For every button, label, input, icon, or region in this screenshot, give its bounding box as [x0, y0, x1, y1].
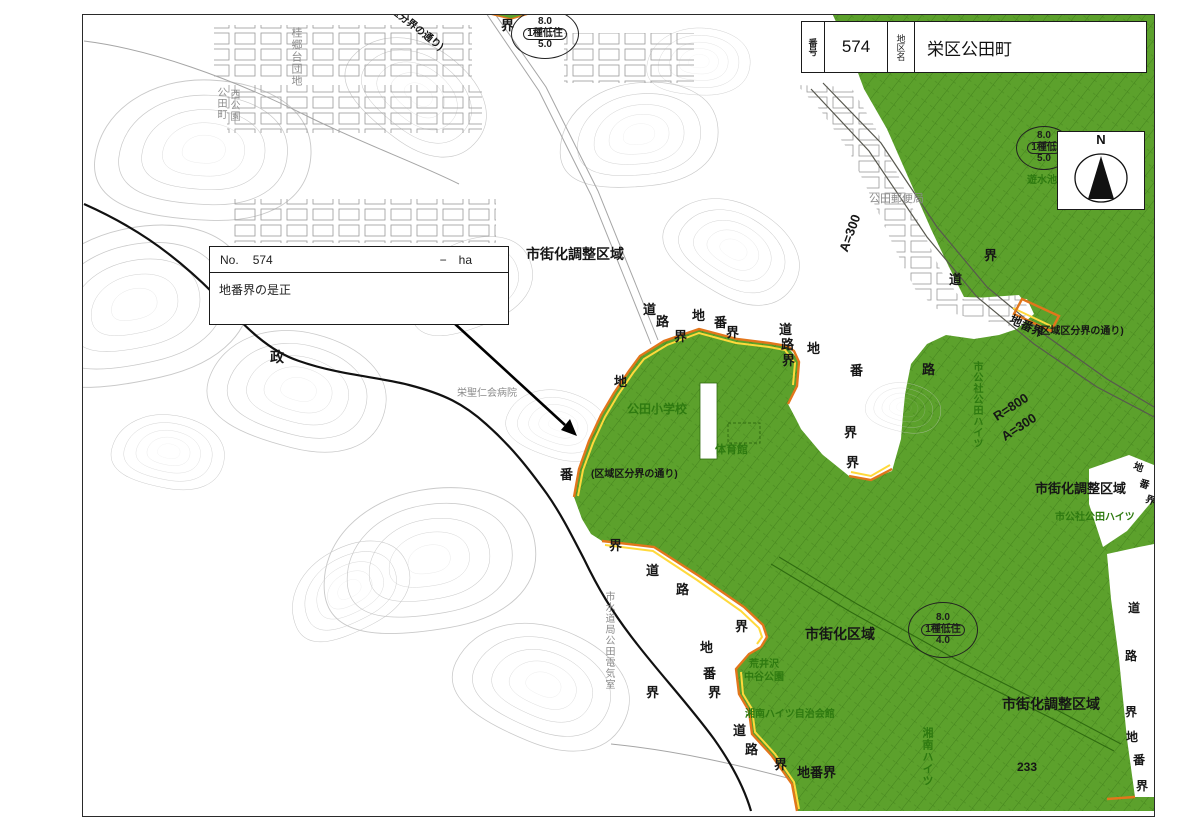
map-label: 中谷公園 — [744, 673, 784, 683]
map-label: 路 — [656, 315, 669, 328]
map-label: 道 — [643, 303, 656, 316]
map-label: 公田郵便局 — [869, 194, 924, 205]
map-label: 荒井沢 — [749, 660, 779, 670]
map-label: 番 — [703, 667, 716, 680]
map-label: 道 — [1128, 602, 1140, 614]
annotation-info-box: No. 574 − ha 地番界の是正 — [209, 246, 509, 325]
map-label: 地 — [807, 342, 820, 355]
map-label: 政 — [270, 350, 284, 364]
map-label: 地 — [1126, 731, 1138, 743]
map-label: 桂郷台団地 — [290, 27, 301, 87]
map-label: 市街化調整区域 — [1002, 697, 1100, 711]
map-frame: 番号 574 地区名 栄区公田町 No. 574 − ha 地番界の是正 N — [82, 14, 1155, 817]
annotation-arrow — [454, 323, 577, 436]
map-label: 市水道局公田電気室 — [603, 591, 613, 690]
map-label: 番 — [850, 364, 863, 377]
zoning-symbol-row: 4.0 — [936, 636, 950, 647]
map-label: 界 — [674, 330, 687, 343]
map-label: 地番界 — [797, 766, 836, 779]
map-label: 道 — [949, 273, 962, 286]
map-label: 栄聖仁会病院 — [457, 389, 517, 399]
map-label: 体育館 — [715, 445, 748, 456]
map-label: 界 — [782, 354, 795, 367]
map-label: 市公社公田ハイツ — [971, 361, 981, 449]
zoning-symbol: 8.01種低住4.0 — [908, 602, 978, 658]
map-label: 界 — [708, 686, 721, 699]
map-label: 市街化調整区域 — [1035, 482, 1126, 495]
number-value-cell: 574 — [825, 22, 888, 72]
info-box-row1: No. 574 − ha — [210, 247, 508, 273]
info-description: 地番界の是正 — [219, 281, 508, 298]
map-label: (区域区分界の通り) — [1037, 327, 1124, 337]
map-label: 道 — [779, 323, 792, 336]
map-label: 路 — [781, 338, 794, 351]
map-label: 市街化調整区域 — [526, 247, 624, 261]
info-area-unit: ha — [459, 253, 472, 267]
plan-map-page: 番号 574 地区名 栄区公田町 No. 574 − ha 地番界の是正 N — [0, 0, 1200, 829]
map-label: 界 — [726, 326, 739, 339]
north-arrow: N — [1057, 131, 1145, 210]
north-arrow-icon — [1058, 147, 1144, 207]
map-label: 地 — [700, 641, 713, 654]
map-label: 界 — [1136, 780, 1148, 792]
map-label: 路 — [676, 583, 689, 596]
info-area-value: − — [440, 253, 447, 267]
map-label: 地 — [614, 375, 627, 388]
map-label: 公田町 — [215, 87, 225, 120]
zoning-symbol-row: 5.0 — [1037, 154, 1051, 165]
map-label: 路 — [922, 363, 935, 376]
map-label: 市街化区域 — [805, 627, 875, 641]
map-label: 市公社公田ハイツ — [1055, 513, 1135, 523]
info-number: 574 — [253, 253, 273, 267]
map-label: 界 — [1125, 706, 1137, 718]
zoning-symbol-row: 8.0 — [1037, 131, 1051, 142]
district-name-cell: 栄区公田町 — [915, 22, 1146, 72]
zoning-symbol-row: 5.0 — [538, 40, 552, 51]
map-label: 界 — [844, 426, 857, 439]
map-label: 界 — [735, 620, 748, 633]
sheet-header-table: 番号 574 地区名 栄区公田町 — [801, 21, 1147, 73]
map-label: 湘南ハイツ自治会館 — [745, 710, 835, 720]
zoning-symbol-row: 8.0 — [538, 17, 552, 28]
district-label-cell: 地区名 — [888, 22, 915, 72]
map-label: (区域区分界の通り) — [591, 470, 678, 480]
map-label: 233 — [1017, 761, 1037, 773]
map-label: 公田小学校 — [627, 403, 687, 415]
map-label: 番 — [1133, 754, 1145, 766]
map-label: 地 — [692, 309, 705, 322]
map-label: 道 — [733, 724, 746, 737]
map-label: 界 — [846, 456, 859, 469]
map-label: 遊水池 — [1027, 176, 1057, 186]
map-label: 番 — [560, 468, 573, 481]
map-label: 西公園 — [228, 89, 238, 122]
building-blocks — [214, 25, 694, 243]
map-label: 路 — [1125, 650, 1137, 662]
number-label-cell: 番号 — [802, 22, 825, 72]
map-label: 湘南ハイツ — [921, 727, 932, 787]
zoning-symbol-row: 8.0 — [936, 613, 950, 624]
map-label: 道 — [646, 564, 659, 577]
map-label: 界 — [609, 539, 622, 552]
map-label: 界 — [646, 686, 659, 699]
info-no-label: No. — [220, 253, 239, 267]
map-label: 路 — [745, 743, 758, 756]
map-label: 界 — [984, 249, 997, 262]
map-label: 界 — [774, 758, 787, 771]
north-label: N — [1058, 133, 1144, 147]
